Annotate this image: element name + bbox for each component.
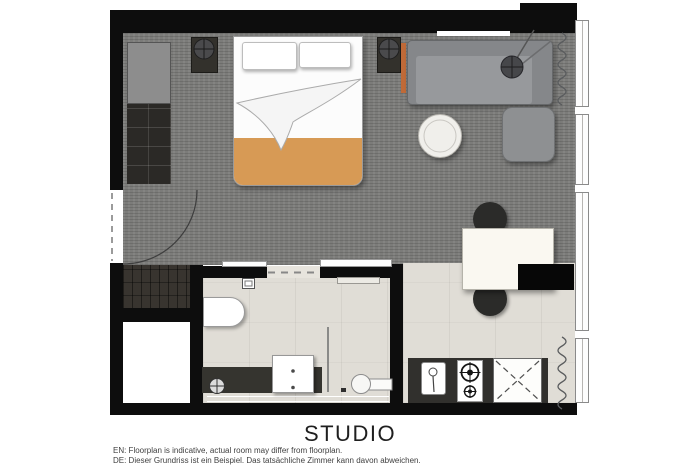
shaft-space [123, 322, 190, 403]
wall-bathroom-right [390, 264, 403, 403]
stove [457, 360, 483, 402]
wall-fixture [242, 278, 255, 289]
window-divider [575, 184, 589, 193]
bathroom-shelf [337, 277, 380, 284]
vanity-sink [272, 355, 314, 393]
wardrobe [127, 104, 171, 184]
ottoman [502, 107, 555, 162]
dresser [127, 42, 171, 104]
orange-accent-strip [401, 43, 406, 93]
pillow-left [242, 42, 297, 70]
wall-top [110, 10, 577, 33]
wall-shaft-top [110, 308, 203, 322]
under-counter-appliance [493, 358, 542, 403]
wall-bathroom-top-left [203, 266, 267, 278]
bed-blanket [234, 138, 362, 185]
window-divider [575, 330, 589, 339]
window-mullion-line [582, 21, 583, 402]
wall-top-step [520, 3, 577, 12]
nightstand-left [191, 37, 218, 73]
footnote-de: DE: Dieser Grundriss ist ein Beispiel. D… [113, 456, 673, 466]
window-wall-right [575, 20, 589, 403]
kitchen-sink [421, 362, 446, 395]
footnote-en: EN: Floorplan is indicative, actual room… [113, 446, 673, 456]
sliding-door-panel [320, 259, 392, 267]
tv-side-unit [518, 264, 574, 290]
sofa-seat [416, 56, 532, 104]
bathroom-door-opening [267, 266, 320, 278]
entry-door-opening [110, 190, 123, 263]
round-side-table [418, 114, 462, 158]
wall-left-upper [110, 10, 123, 190]
nightstand-right [377, 37, 401, 73]
wall-left-lower [110, 263, 123, 415]
entry-wood-floor [123, 265, 190, 308]
pillow-right [299, 42, 351, 68]
plan-title: STUDIO [0, 421, 700, 447]
bathtub-basin [203, 297, 245, 327]
window-divider [575, 106, 589, 115]
sliding-door-pocket [222, 261, 267, 267]
bathroom-wall-detail [207, 396, 389, 402]
floorplan-canvas: STUDIO EN: Floorplan is indicative, actu… [0, 0, 700, 467]
top-wall-window [437, 31, 510, 36]
wall-bottom [110, 403, 577, 415]
